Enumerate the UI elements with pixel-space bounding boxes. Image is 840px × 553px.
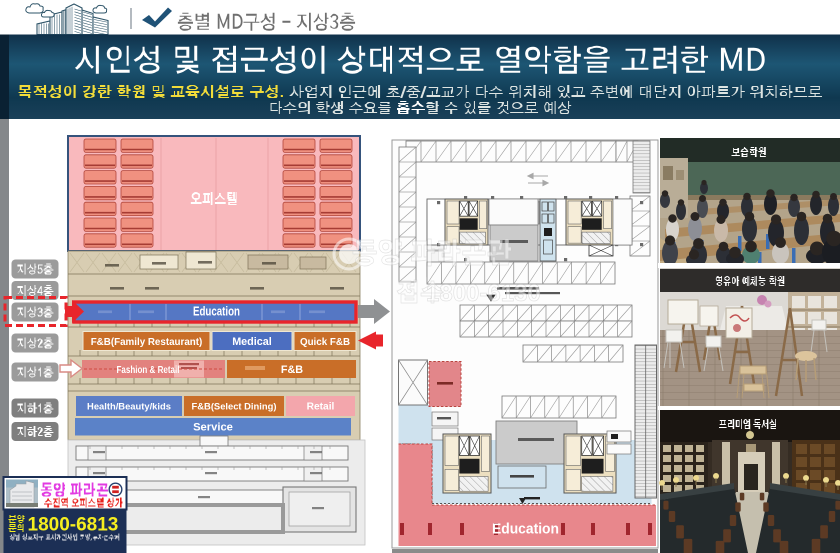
svg-text:Service: Service	[193, 422, 233, 434]
svg-text:Medical: Medical	[232, 336, 272, 348]
svg-text:Education: Education	[492, 522, 559, 538]
svg-text:Retail: Retail	[307, 402, 335, 413]
svg-text:F&B: F&B	[281, 364, 303, 376]
svg-text:Quick F&B: Quick F&B	[300, 337, 350, 348]
svg-text:Health/Beauty/kids: Health/Beauty/kids	[87, 401, 171, 412]
svg-text:Fashion & Retail: Fashion & Retail	[117, 364, 180, 376]
svg-text:1800-6130: 1800-6130	[426, 280, 541, 307]
svg-text:F&B(Select Dining): F&B(Select Dining)	[192, 401, 277, 412]
svg-text:Education: Education	[193, 304, 240, 319]
svg-text:1800-6813: 1800-6813	[28, 515, 119, 536]
svg-text:F&B(Family Restaurant): F&B(Family Restaurant)	[91, 337, 203, 348]
